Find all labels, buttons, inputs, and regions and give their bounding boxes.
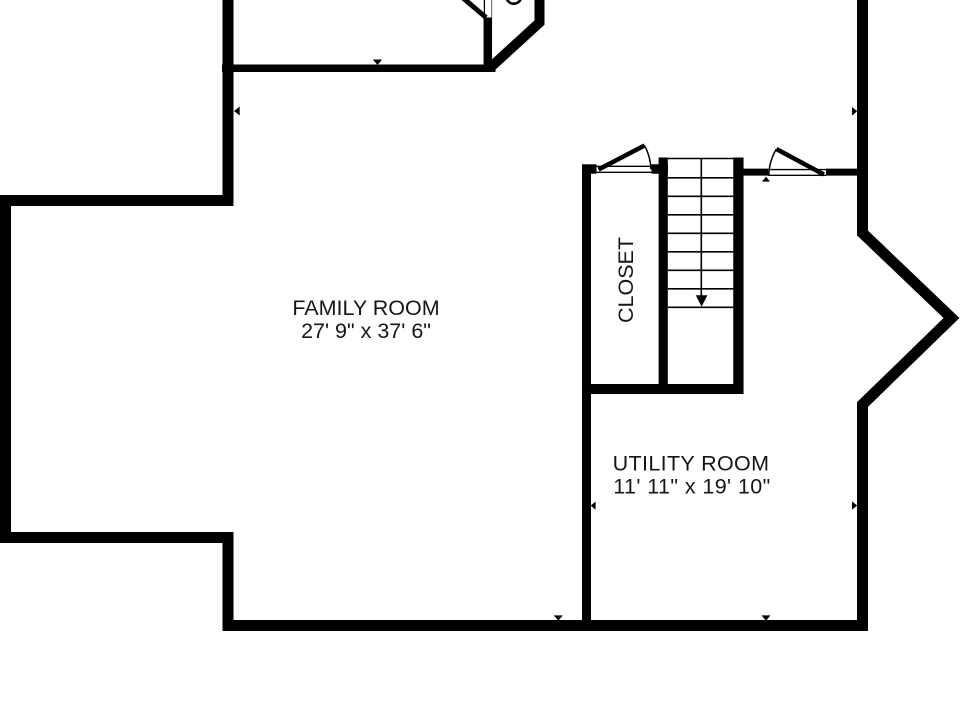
svg-text:FAMILY ROOM: FAMILY ROOM	[292, 296, 439, 320]
svg-text:UTILITY ROOM: UTILITY ROOM	[613, 452, 770, 476]
svg-text:11' 11" x 19' 10": 11' 11" x 19' 10"	[613, 475, 770, 499]
svg-text:27' 9" x 37' 6": 27' 9" x 37' 6"	[301, 319, 431, 343]
svg-text:CLOSET: CLOSET	[614, 237, 638, 323]
